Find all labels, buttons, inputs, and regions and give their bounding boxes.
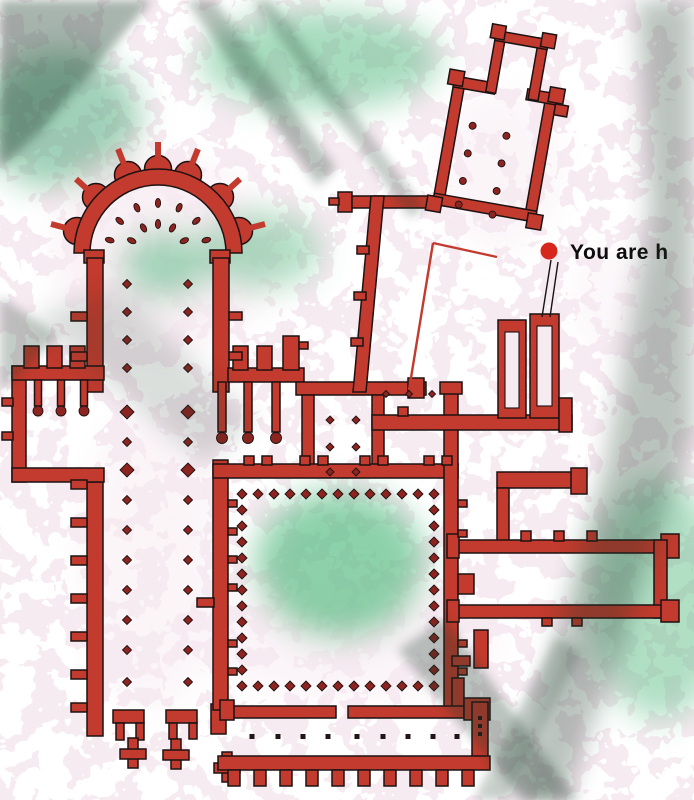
abbey-plan-map: You are h bbox=[0, 0, 694, 800]
site-map-board: You are h bbox=[0, 0, 694, 800]
you-are-here-dot bbox=[541, 243, 558, 260]
